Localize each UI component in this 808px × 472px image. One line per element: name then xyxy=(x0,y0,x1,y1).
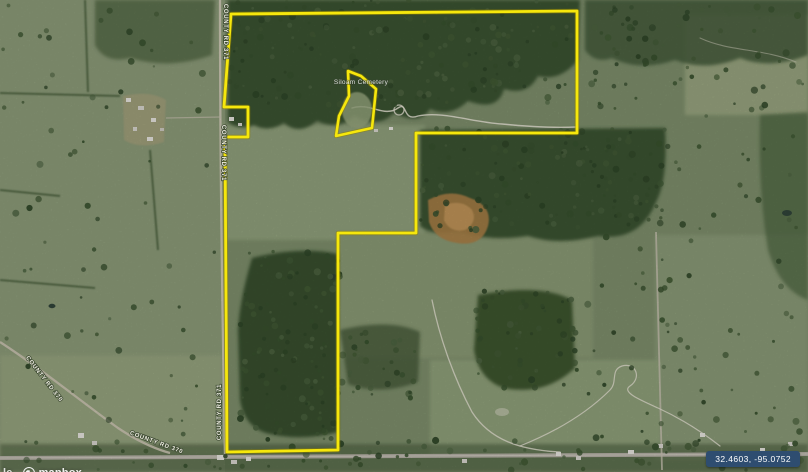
mapbox-logo-icon xyxy=(23,467,35,472)
mapbox-attribution[interactable]: le mapbox xyxy=(3,467,82,472)
cemetery-label: Siloam Cemetery xyxy=(334,79,389,86)
road-label: COUNTY RD 371 xyxy=(222,4,228,60)
imagery-grain xyxy=(0,0,808,472)
satellite-map-canvas[interactable]: Siloam Cemetery COUNTY RD 371COUNTY RD 3… xyxy=(0,0,808,472)
coordinate-badge: 32.4603, -95.0752 xyxy=(706,451,800,467)
mapbox-wordmark: mapbox xyxy=(39,467,82,472)
road-label: COUNTY RD 371 xyxy=(217,384,223,440)
map-imagery: Siloam Cemetery COUNTY RD 371COUNTY RD 3… xyxy=(0,0,808,472)
attribution-fragment: le xyxy=(3,467,13,472)
road-label: COUNTY RD 371 xyxy=(220,125,226,181)
